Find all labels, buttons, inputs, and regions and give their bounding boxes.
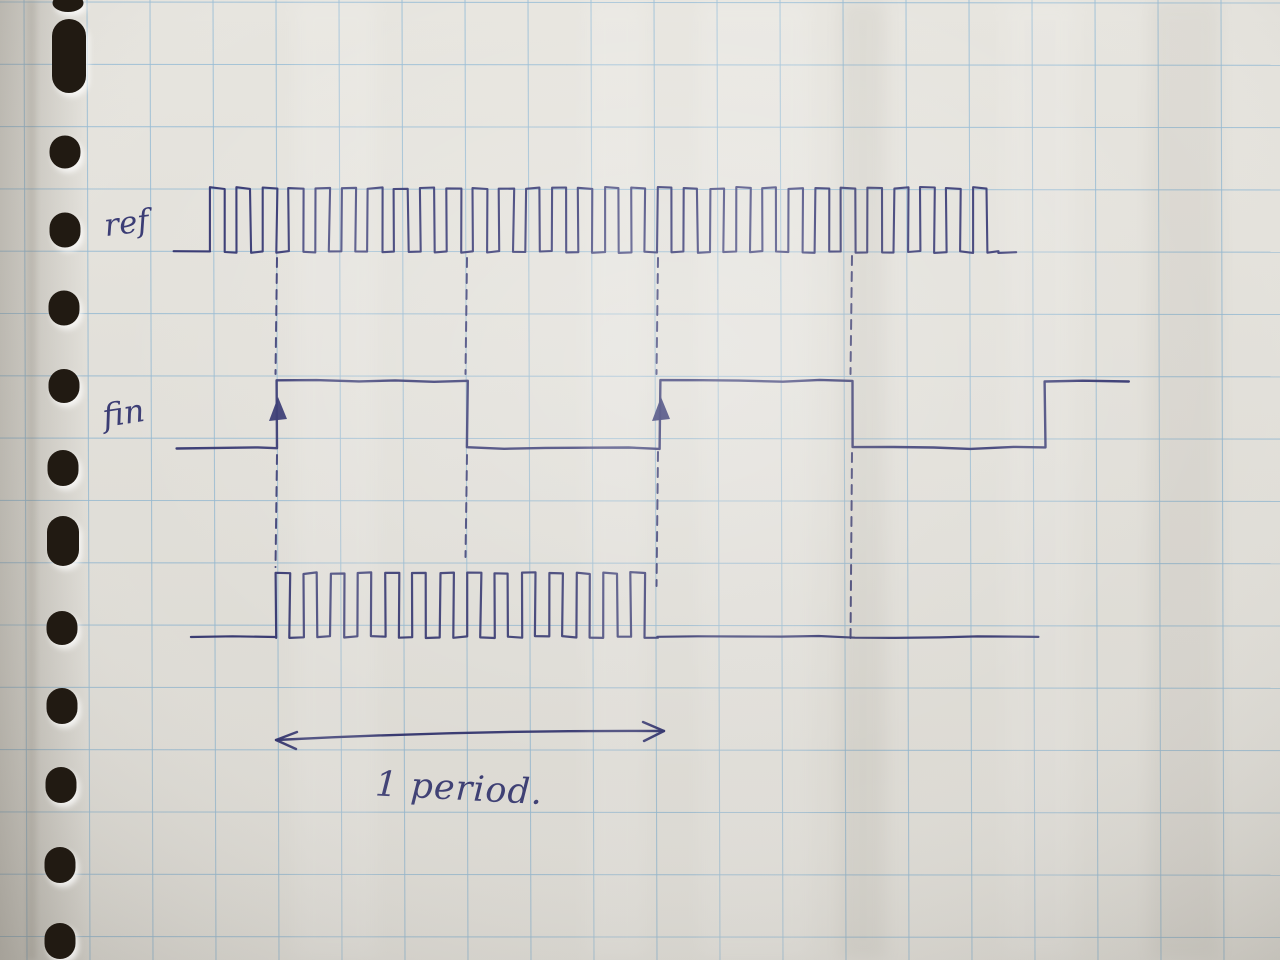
timing-diagram-sketch: ref fin 1 period. <box>0 0 1280 960</box>
punch-hole <box>49 291 80 326</box>
punch-hole <box>47 516 79 566</box>
punch-hole <box>47 611 78 645</box>
punch-hole <box>49 369 80 403</box>
punch-hole <box>47 688 78 724</box>
punch-hole <box>52 19 86 93</box>
punch-hole <box>50 136 81 169</box>
punch-hole <box>46 767 77 803</box>
notebook-photo: ref fin 1 period. <box>0 0 1280 960</box>
punch-hole <box>50 213 81 248</box>
punch-hole <box>45 847 76 883</box>
punch-hole <box>48 450 79 486</box>
bottom-shading <box>0 0 1280 960</box>
punch-hole <box>45 923 76 959</box>
